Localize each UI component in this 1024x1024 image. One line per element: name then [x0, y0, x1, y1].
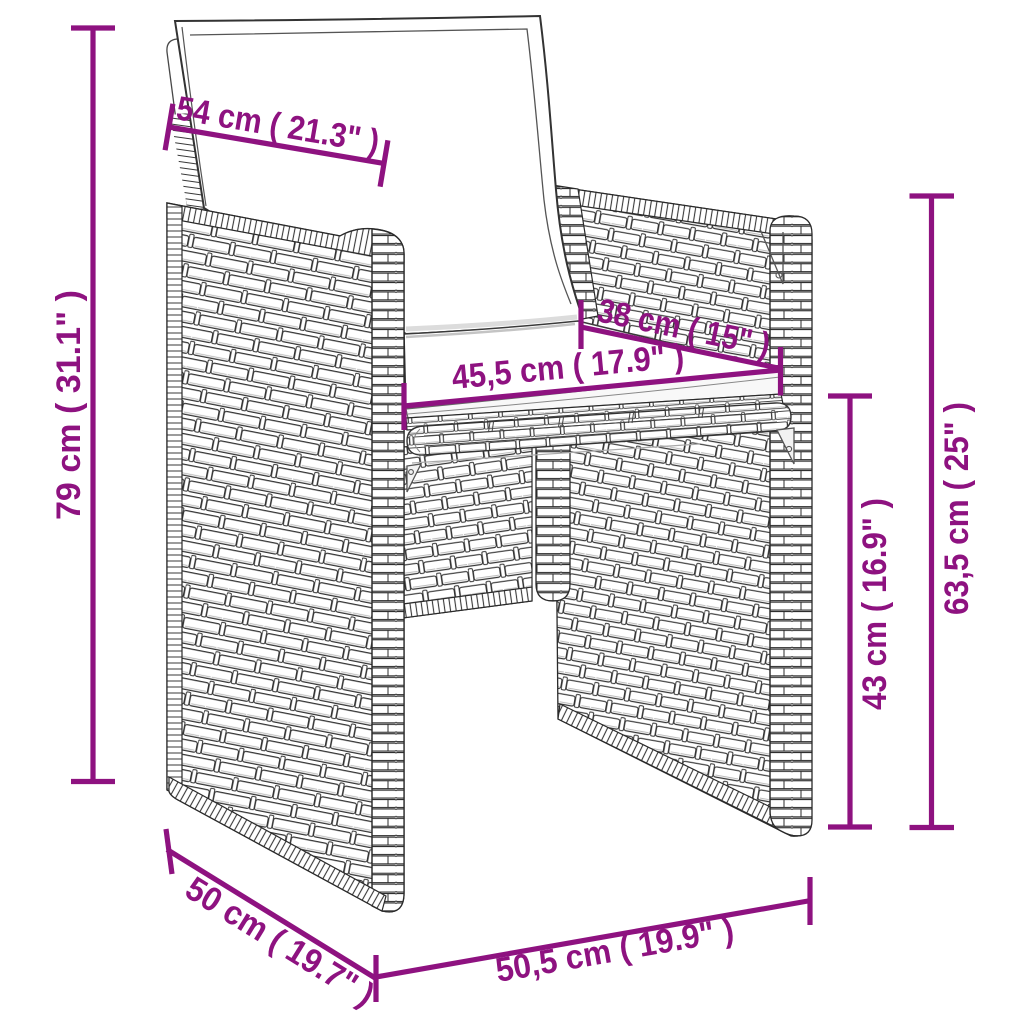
svg-text:79 cm ( 31.1" ): 79 cm ( 31.1" ) [50, 290, 88, 520]
svg-text:43 cm ( 16.9" ): 43 cm ( 16.9" ) [856, 498, 894, 710]
svg-text:63,5 cm ( 25" ): 63,5 cm ( 25" ) [938, 402, 976, 615]
